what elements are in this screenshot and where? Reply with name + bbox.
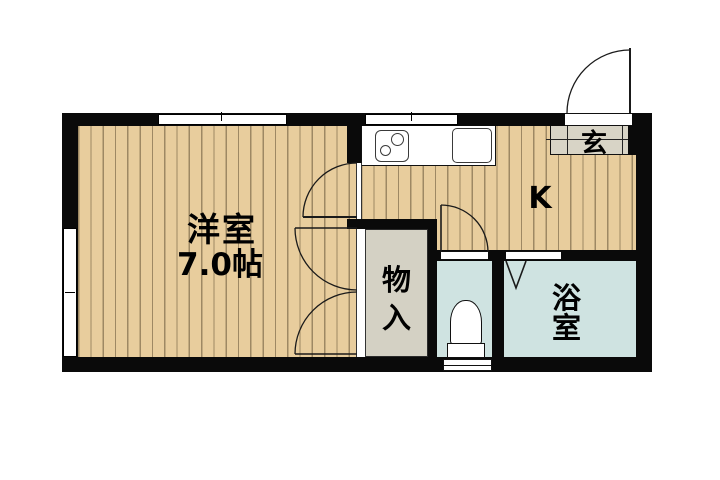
tile-grid-line <box>622 126 623 154</box>
doorway-toilet <box>441 251 488 260</box>
bathroom-label: 浴室 <box>551 283 582 344</box>
floorplan: 洋室 7.0帖 K 物入 浴室 玄 <box>0 0 720 480</box>
western-room-size-label: 7.0帖 <box>140 239 300 284</box>
window-tick <box>411 112 412 121</box>
window-tick <box>65 292 75 293</box>
closet-label: 物入 <box>381 261 412 338</box>
tile-grid-line <box>567 126 568 154</box>
wall-closet-toilet <box>428 219 437 372</box>
doorway-bathroom <box>506 251 561 260</box>
window-west-top <box>158 114 287 125</box>
sink-icon <box>452 128 492 163</box>
kitchen-label: K <box>524 181 556 216</box>
stove-burner-icon <box>391 133 404 146</box>
window-mullion <box>444 365 491 366</box>
wall-right <box>636 113 652 372</box>
window-tick <box>221 112 222 121</box>
doorway-west-kitchen <box>356 163 362 219</box>
toilet-window <box>443 359 492 371</box>
wall-bottom <box>62 357 652 372</box>
wall-divider-west-kitchen <box>347 113 361 163</box>
entrance-label: 玄 <box>580 123 608 160</box>
toilet-tank-icon <box>447 343 485 358</box>
doorway-closet <box>356 229 366 357</box>
entrance-door-arc <box>567 50 630 113</box>
stove-burner-icon <box>380 145 391 156</box>
wall-closet-top <box>347 219 437 229</box>
wall-toilet-bath <box>492 250 504 372</box>
toilet-icon <box>450 300 482 345</box>
